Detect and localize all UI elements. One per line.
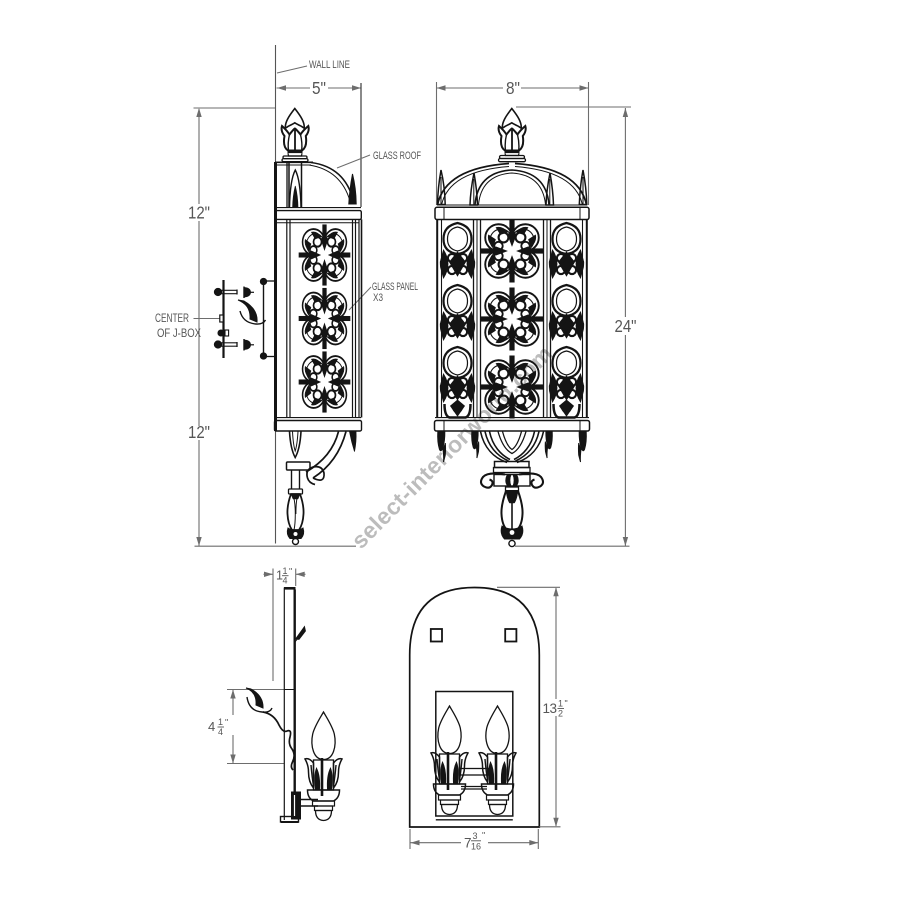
svg-text:GLASS ROOF: GLASS ROOF [373,150,421,162]
svg-text:": " [565,699,568,709]
svg-text:13: 13 [543,701,557,716]
svg-text:1: 1 [218,717,223,727]
svg-text:": " [225,718,228,728]
svg-text:": " [482,831,485,841]
svg-text:2: 2 [558,709,563,719]
svg-text:WALL LINE: WALL LINE [309,59,350,71]
svg-text:5": 5" [312,78,326,98]
svg-text:4: 4 [283,576,288,586]
svg-text:1: 1 [558,699,563,709]
svg-text:": " [289,567,292,577]
svg-text:8": 8" [506,78,520,98]
svg-text:3: 3 [473,831,478,841]
svg-text:4: 4 [208,719,215,734]
svg-text:12": 12" [188,422,210,442]
svg-text:X3: X3 [373,292,383,304]
svg-text:16: 16 [471,842,481,852]
svg-text:OF J-BOX: OF J-BOX [157,328,201,340]
svg-text:1: 1 [283,566,288,576]
svg-text:12": 12" [188,203,210,223]
svg-text:CENTER: CENTER [155,313,189,325]
svg-text:4: 4 [218,727,223,737]
svg-text:24": 24" [615,316,637,336]
